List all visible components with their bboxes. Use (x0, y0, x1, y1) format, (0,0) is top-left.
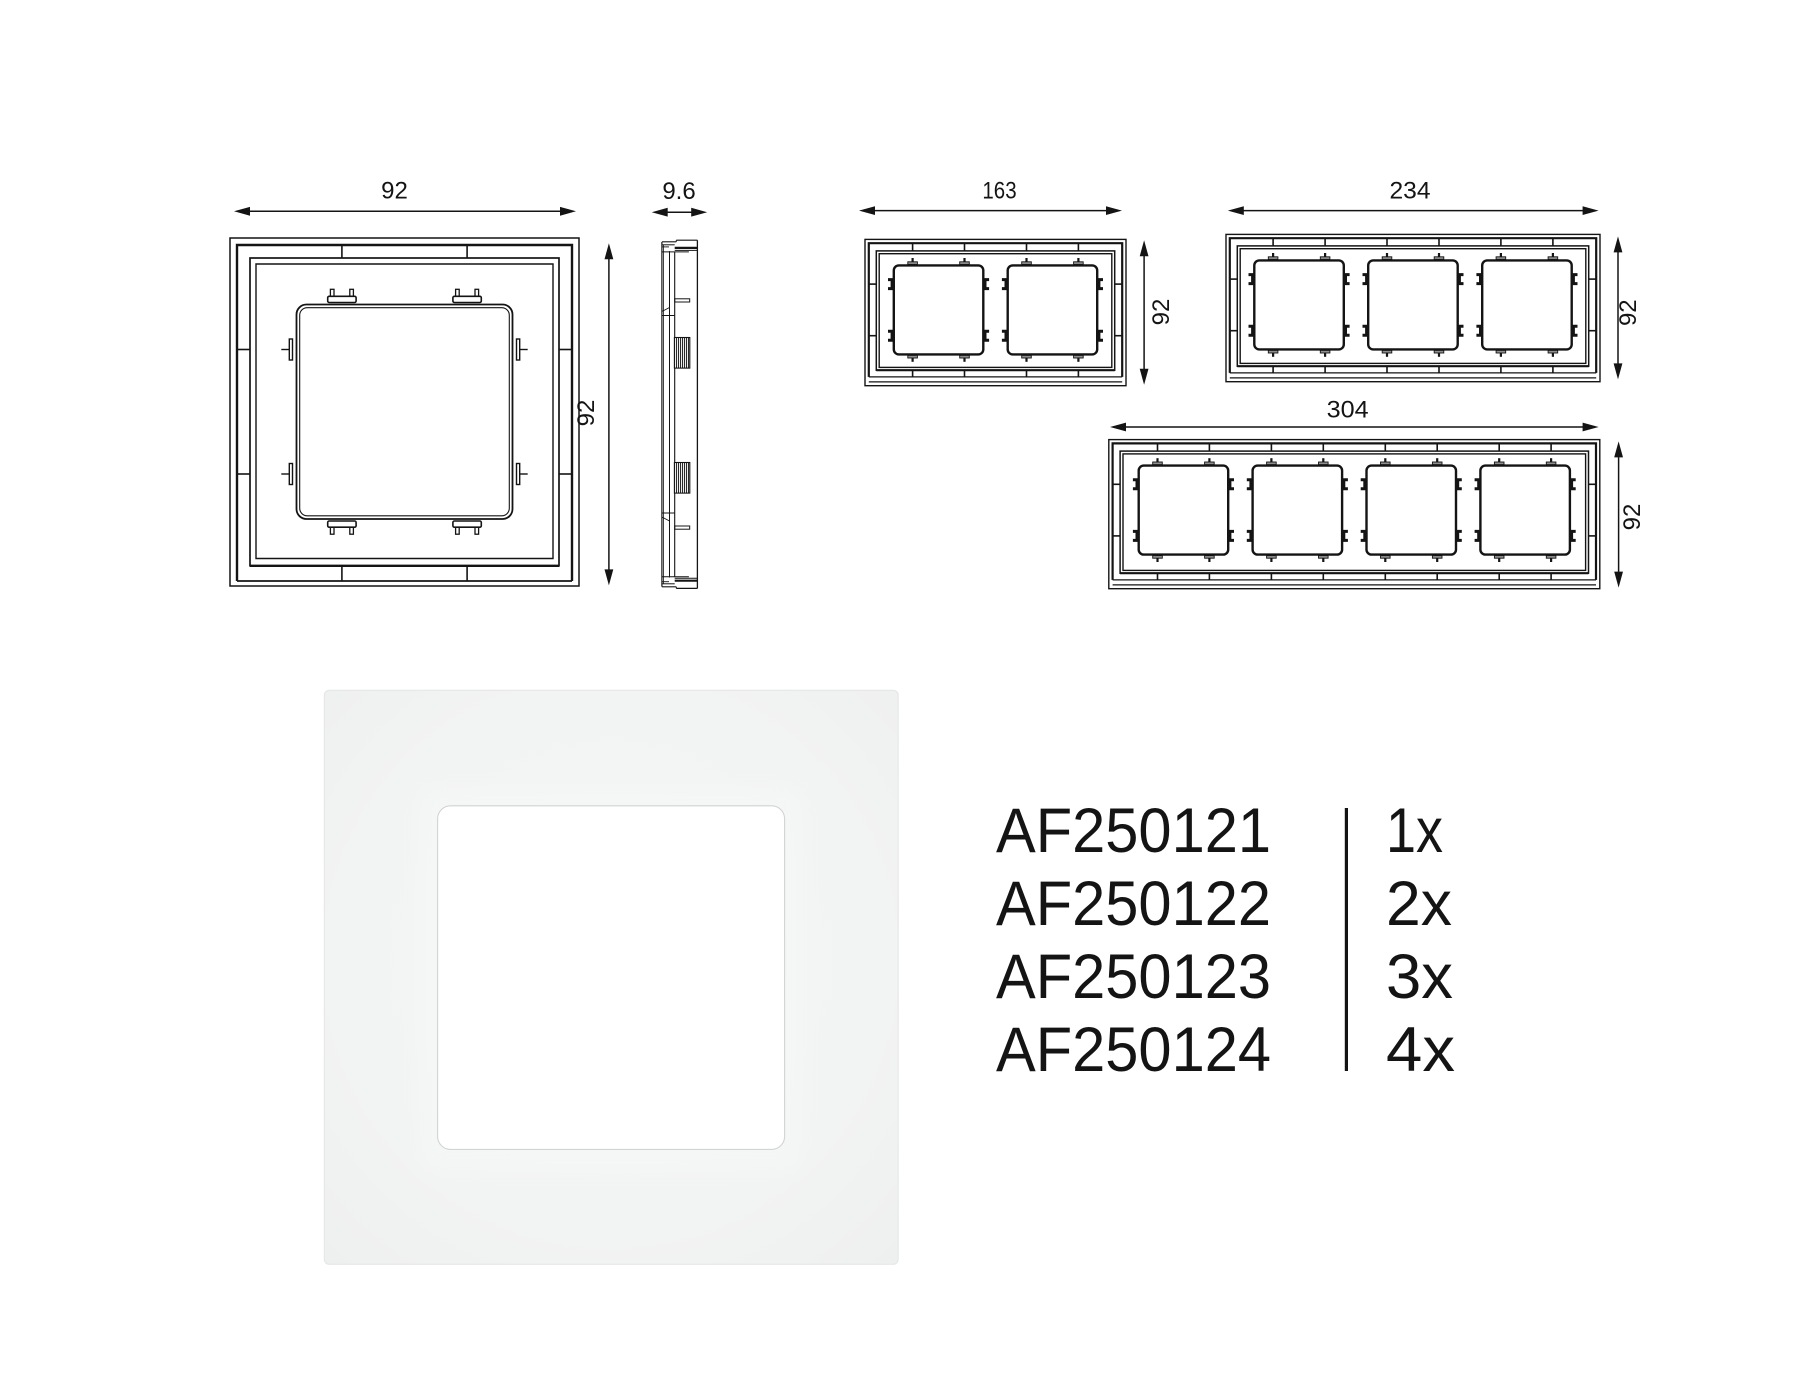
svg-text:92: 92 (1615, 299, 1642, 326)
svg-text:234: 234 (1390, 178, 1431, 205)
svg-text:92: 92 (381, 178, 408, 205)
svg-text:92: 92 (573, 400, 600, 427)
svg-text:AF250123: AF250123 (996, 942, 1271, 1012)
svg-text:AF250122: AF250122 (996, 869, 1271, 939)
svg-text:3x: 3x (1386, 942, 1453, 1012)
svg-text:AF250124: AF250124 (996, 1015, 1271, 1085)
svg-text:AF250121: AF250121 (996, 796, 1271, 866)
svg-text:4x: 4x (1386, 1015, 1455, 1085)
svg-text:92: 92 (1148, 299, 1175, 326)
svg-text:92: 92 (1619, 504, 1646, 531)
svg-text:2x: 2x (1386, 869, 1452, 939)
svg-text:9.6: 9.6 (662, 178, 695, 205)
svg-text:163: 163 (982, 178, 1016, 205)
svg-text:1x: 1x (1386, 796, 1443, 866)
svg-text:304: 304 (1327, 397, 1369, 424)
